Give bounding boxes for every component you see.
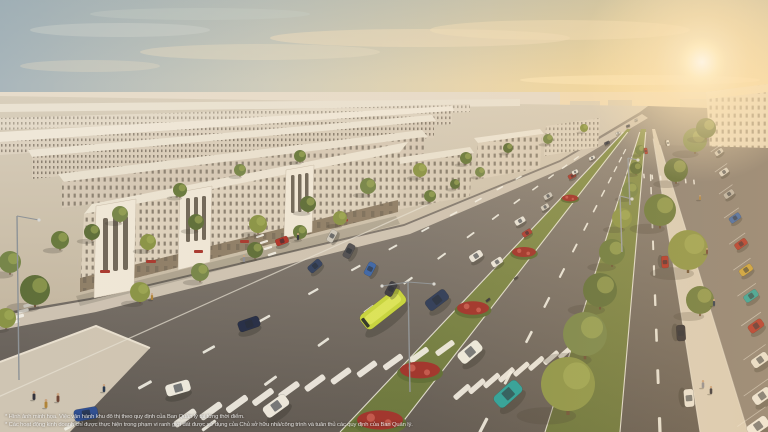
scene-render <box>0 0 768 432</box>
sunlight-overlay <box>0 0 768 432</box>
township-aerial-render: * Hình ảnh minh họa. Việc vận hành khu đ… <box>0 0 768 432</box>
